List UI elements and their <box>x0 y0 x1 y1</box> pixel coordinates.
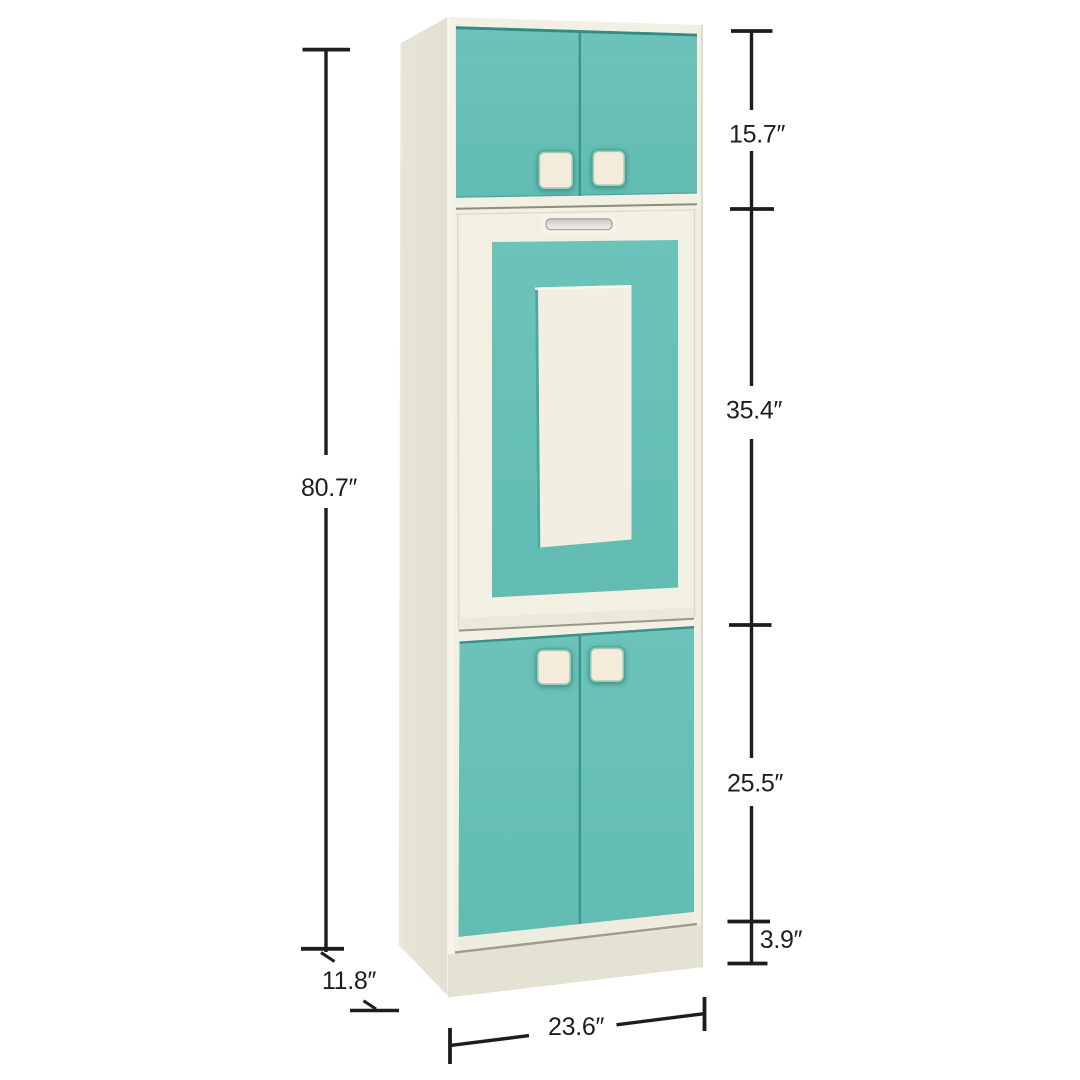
svg-text:80.7″: 80.7″ <box>301 474 357 502</box>
svg-text:3.9″: 3.9″ <box>760 926 803 954</box>
svg-text:35.4″: 35.4″ <box>726 397 782 425</box>
svg-text:11.8″: 11.8″ <box>322 967 377 995</box>
svg-text:15.7″: 15.7″ <box>729 121 785 149</box>
svg-text:23.6″: 23.6″ <box>548 1013 604 1041</box>
svg-text:25.5″: 25.5″ <box>727 770 783 798</box>
